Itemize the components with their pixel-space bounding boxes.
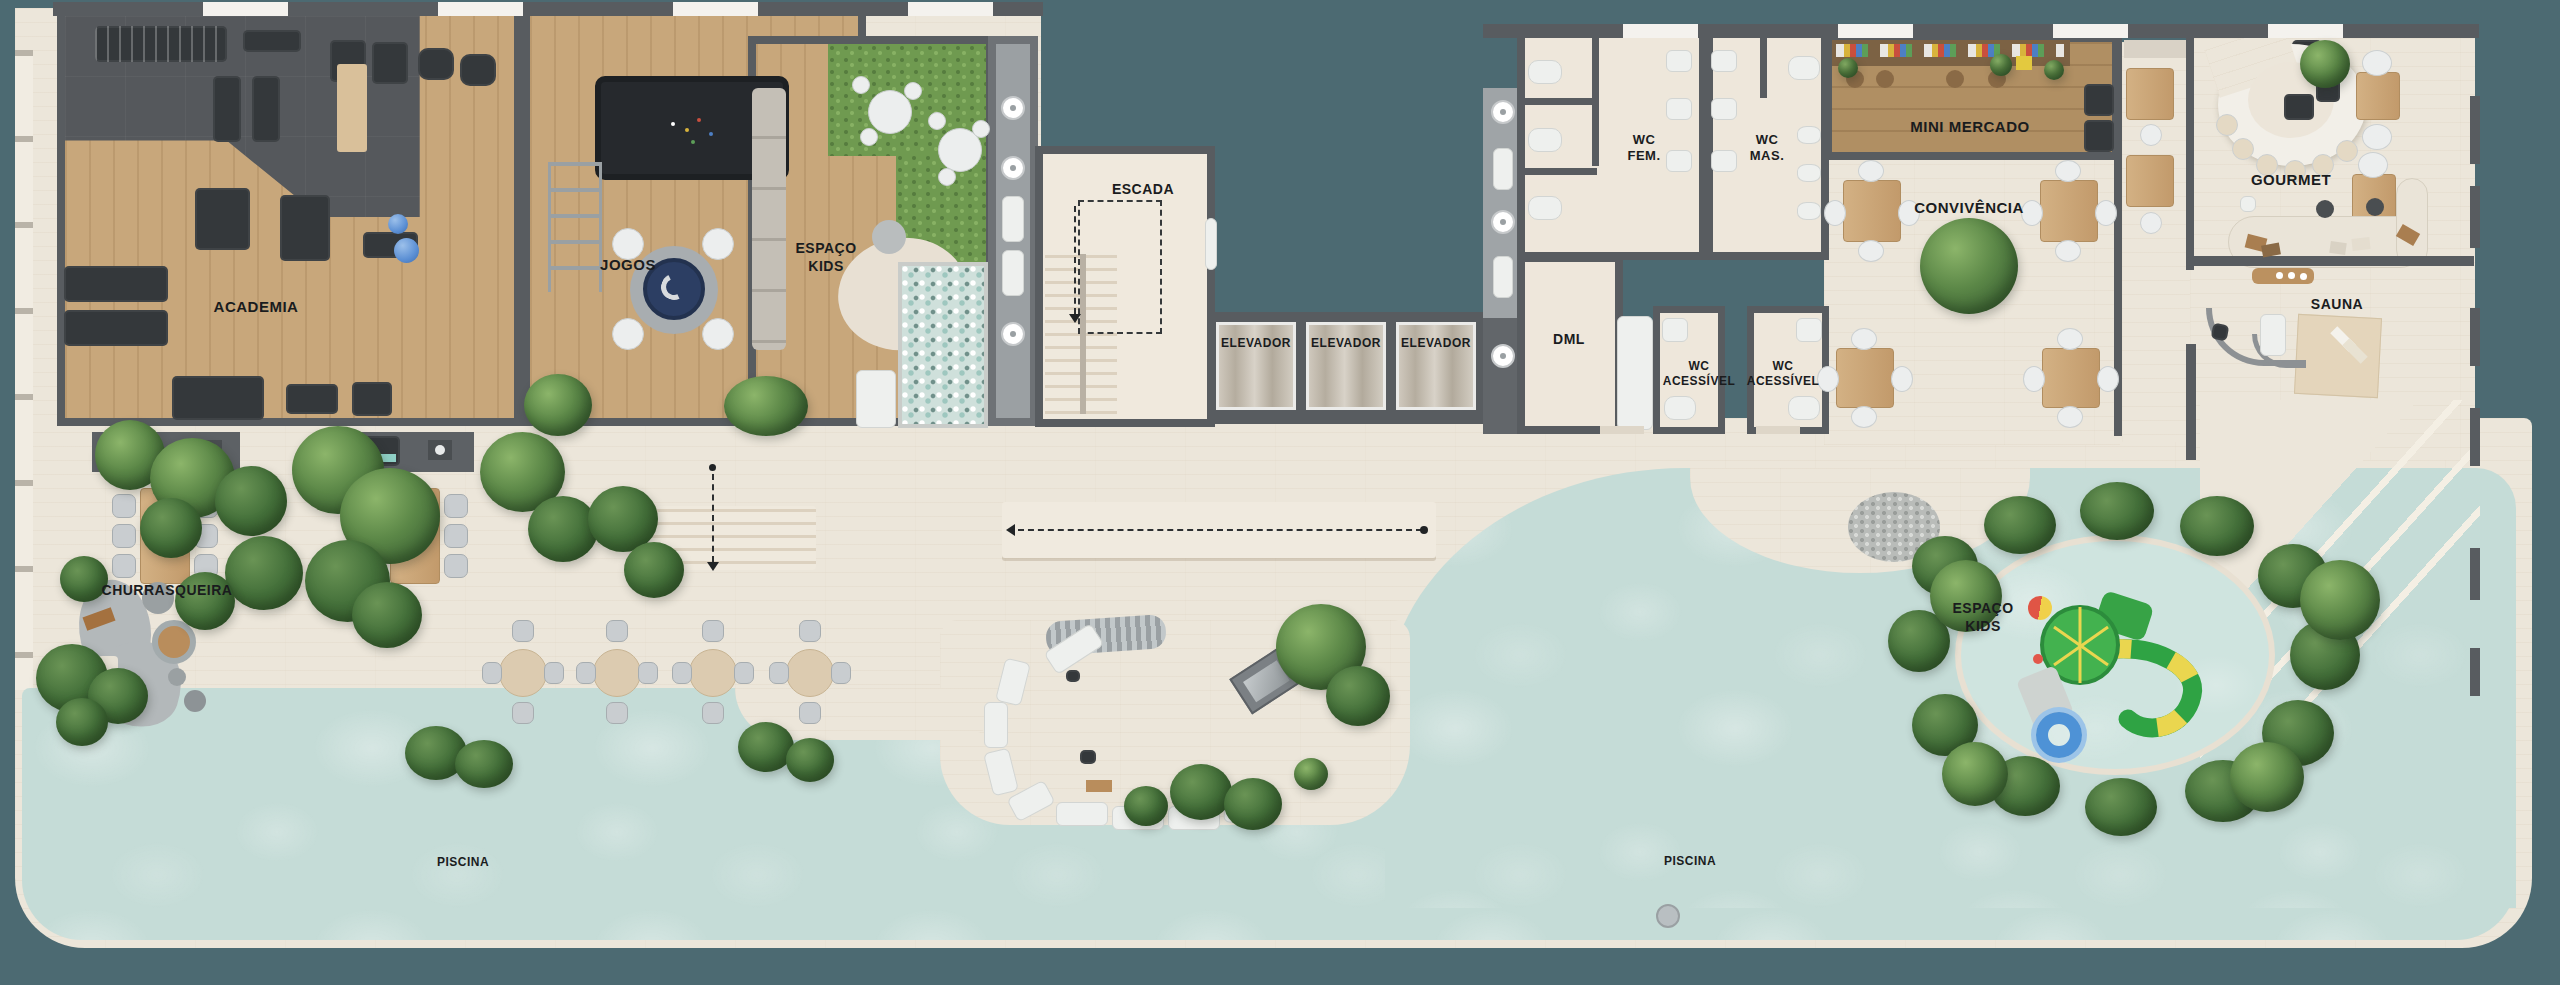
label-wc-acessivel-2: WC ACESSÍVEL: [1747, 359, 1820, 389]
utility-meter: [1001, 156, 1025, 180]
pit-plant: [1326, 666, 1390, 726]
ball-pit: [898, 262, 988, 428]
label-wc-mas: WC MAS.: [1750, 132, 1785, 165]
label-academia: ACADEMIA: [214, 298, 299, 317]
gym-chair: [418, 48, 454, 80]
toilet: [1528, 60, 1562, 84]
dining-table: [1843, 180, 1901, 242]
chair: [702, 228, 734, 260]
pool-drain-cap: [1656, 904, 1680, 928]
kids-chair: [904, 82, 922, 100]
pool-hedge: [1224, 778, 1282, 830]
stall-wall: [1525, 168, 1597, 175]
sink: [1666, 50, 1692, 72]
sink: [1711, 98, 1737, 120]
chair: [2095, 200, 2117, 226]
float-ring: [2036, 712, 2082, 758]
exercise-ball: [388, 214, 408, 234]
crate: [2016, 56, 2032, 70]
chair: [2057, 406, 2083, 428]
path-dot: [709, 464, 716, 471]
stool: [2140, 212, 2162, 234]
stall-wall: [1592, 38, 1599, 166]
utility-box: [1493, 148, 1513, 190]
island-hedge: [2180, 496, 2254, 556]
chair: [1851, 328, 1877, 350]
tall-door-panel: [1617, 316, 1653, 430]
sauna-left-wall: [2186, 344, 2196, 460]
cafe-table: [499, 649, 547, 697]
ramp-dot: [1420, 526, 1428, 534]
chair: [1858, 240, 1884, 262]
tree: [528, 496, 598, 562]
side-table: [2316, 200, 2334, 218]
facade-segment: [2470, 186, 2480, 248]
pit-tray: [1086, 780, 1112, 792]
urinal: [1797, 202, 1821, 220]
fridge: [2084, 84, 2114, 116]
pit-sofa: [1056, 802, 1108, 826]
chair: [702, 620, 724, 642]
bbq-sink: [428, 440, 452, 460]
wall-table: [2126, 155, 2174, 207]
tree: [1920, 218, 2018, 314]
chair: [482, 662, 502, 684]
label-wc-acessivel-1: WC ACESSÍVEL: [1663, 359, 1736, 389]
utility-meter: [1491, 210, 1515, 234]
urinal: [1797, 164, 1821, 182]
chair: [444, 494, 468, 518]
plate-rack: [352, 382, 392, 416]
chair: [512, 620, 534, 642]
chair: [831, 662, 851, 684]
dining-table: [2042, 348, 2100, 408]
top-facade-wall-right: [1483, 24, 2479, 38]
plant: [524, 374, 592, 436]
sofa-pillow: [2351, 237, 2370, 251]
island-palm: [1942, 742, 2008, 806]
kids-chair: [852, 76, 870, 94]
tree: [352, 582, 422, 648]
door: [1205, 218, 1217, 270]
toilet: [1528, 196, 1562, 220]
chair: [799, 620, 821, 642]
floor-plan: ACADEMIA JOGOS ESPAÇO KIDS ESCADA ELEVAD…: [0, 0, 2560, 985]
label-piscina-left: PISCINA: [437, 855, 489, 870]
kids-chair: [928, 112, 946, 130]
ramp-dashed-line: [1018, 529, 1422, 531]
island-palm: [2300, 560, 2380, 640]
label-espaco-kids-indoor: ESPAÇO KIDS: [795, 240, 856, 275]
palm: [56, 698, 108, 746]
chair: [2358, 152, 2388, 178]
sofa-pillow: [2329, 241, 2347, 255]
urinal: [1797, 126, 1821, 144]
chair: [112, 554, 136, 578]
plant: [1838, 58, 1858, 78]
stall-wall: [1525, 98, 1597, 105]
chair: [672, 662, 692, 684]
pool-hedge: [455, 740, 513, 788]
treadmill: [213, 76, 241, 142]
plant: [2300, 40, 2350, 88]
sink: [1666, 98, 1692, 120]
bar-stool: [2336, 140, 2358, 162]
sink: [1711, 150, 1737, 172]
label-elevador-2: ELEVADOR: [1311, 336, 1381, 351]
kids-chair: [972, 120, 990, 138]
utility-box: [1002, 196, 1024, 242]
treadmill: [252, 76, 280, 142]
dining-table: [1836, 348, 1894, 408]
chair: [1817, 366, 1839, 392]
plant: [2044, 60, 2064, 80]
facade-segment: [2470, 96, 2480, 164]
facade-segment: [2470, 408, 2480, 466]
pool-hedge: [1170, 764, 1232, 820]
toilet: [1528, 128, 1562, 152]
label-escada: ESCADA: [1112, 181, 1174, 199]
shelf: [2124, 40, 2186, 58]
stool: [2140, 124, 2162, 146]
gourmet-table: [2356, 72, 2400, 120]
label-dml: DML: [1553, 331, 1585, 349]
chair: [799, 702, 821, 724]
island-hedge: [2080, 482, 2154, 540]
dumbbell-rack: [95, 26, 227, 62]
chair: [1824, 200, 1846, 226]
chair: [734, 662, 754, 684]
door-threshold: [1600, 426, 1644, 434]
chair: [612, 318, 644, 350]
fridge: [2084, 120, 2114, 152]
label-mini-mercado: MINI MERCADO: [1910, 118, 2029, 137]
bench-press: [195, 188, 250, 250]
utility-meter: [1491, 344, 1515, 368]
stair-arrowhead: [1069, 314, 1081, 323]
chair: [544, 662, 564, 684]
tree: [225, 536, 303, 610]
shoulder-press: [64, 266, 168, 302]
sink: [1711, 50, 1737, 72]
chair: [2362, 50, 2392, 76]
chair: [2097, 366, 2119, 392]
squat-cage: [172, 376, 264, 420]
label-jogos: JOGOS: [600, 256, 656, 275]
gym-mat: [372, 42, 408, 84]
chair: [2055, 240, 2081, 262]
label-wc-fem: WC FEM.: [1627, 132, 1660, 165]
chair: [638, 662, 658, 684]
lounge-stool: [184, 690, 206, 712]
chair: [2055, 160, 2081, 182]
chair: [444, 554, 468, 578]
pool-hedge: [1124, 786, 1168, 826]
leg-machine: [280, 195, 330, 261]
sink: [1666, 150, 1692, 172]
side-table: [2366, 198, 2384, 216]
utility-meter: [1491, 100, 1515, 124]
stair-rail: [1080, 254, 1086, 414]
facade-segment: [2470, 648, 2480, 696]
pit-stool: [1066, 670, 1080, 682]
chair: [1851, 406, 1877, 428]
stretching-mat: [337, 64, 367, 152]
stair-guide: [1078, 200, 1162, 334]
door-threshold: [1756, 426, 1800, 434]
top-facade-wall-left: [53, 2, 1043, 16]
sauna-bench: [2252, 268, 2314, 284]
dining-table: [2040, 180, 2098, 242]
utility-box: [1002, 250, 1024, 296]
island-hedge: [2085, 778, 2157, 836]
label-elevador-3: ELEVADOR: [1401, 336, 1471, 351]
facade-segment: [2470, 308, 2480, 366]
chair: [702, 702, 724, 724]
chair: [112, 494, 136, 518]
bar-appliance: [2284, 94, 2314, 120]
chair: [606, 702, 628, 724]
chair: [1858, 160, 1884, 182]
round-coffee-table: [152, 620, 196, 664]
island-hedge: [1984, 496, 2056, 554]
gym-chair: [460, 54, 496, 86]
chair: [512, 702, 534, 724]
chair: [702, 318, 734, 350]
kids-chair: [860, 128, 878, 146]
pit-sofa: [984, 702, 1008, 748]
toilet: [1788, 396, 1820, 420]
exercise-ball: [394, 238, 419, 263]
label-churrasqueira: CHURRASQUEIRA: [102, 582, 233, 600]
chair: [2057, 328, 2083, 350]
lounge-stool: [168, 668, 186, 686]
kids-mat: [856, 370, 896, 428]
wall-table: [2126, 68, 2174, 120]
plant: [724, 376, 808, 436]
chair: [2021, 200, 2043, 226]
shoulder-press: [64, 310, 168, 346]
beach-ball: [2028, 596, 2052, 620]
kids-chair: [938, 168, 956, 186]
pouf: [872, 220, 906, 254]
utility-box: [1493, 256, 1513, 298]
side-table: [2240, 196, 2256, 212]
pit-stool: [1080, 750, 1096, 764]
cafe-table: [786, 649, 834, 697]
kids-bench: [752, 88, 786, 350]
pit-plant: [1294, 758, 1328, 790]
kettlebell-shelf: [243, 30, 301, 52]
cafe-table: [593, 649, 641, 697]
island-palm: [2230, 742, 2304, 812]
sink: [1796, 318, 1822, 342]
label-espaco-kids-pool: ESPAÇO KIDS: [1952, 600, 2013, 635]
chair: [112, 524, 136, 548]
label-sauna: SAUNA: [2311, 296, 2363, 314]
toilet: [1788, 56, 1820, 80]
stall-wall: [1760, 38, 1767, 98]
bar-stool: [2232, 138, 2254, 160]
drain-plate: [2211, 323, 2230, 342]
label-gourmet: GOURMET: [2251, 171, 2331, 190]
sink: [1662, 318, 1688, 342]
cafe-table: [689, 649, 737, 697]
facade-segment: [2470, 548, 2480, 600]
tree: [215, 466, 287, 536]
chair: [1891, 366, 1913, 392]
stair-arrow-line: [1074, 206, 1076, 314]
chair: [2023, 366, 2045, 392]
chair: [444, 524, 468, 548]
ladder-rack: [548, 162, 602, 292]
gourmet-bottom-wall: [2186, 256, 2474, 266]
chair: [606, 620, 628, 642]
label-piscina-right: PISCINA: [1664, 854, 1716, 869]
gourmet-chaise: [2396, 178, 2428, 266]
chair: [2362, 124, 2392, 150]
ramp-arrowhead: [1006, 524, 1015, 536]
plant: [1990, 54, 2012, 76]
chair: [576, 662, 596, 684]
flat-bench: [286, 384, 338, 414]
tree: [175, 572, 235, 630]
path-dashed-line: [712, 474, 714, 562]
utility-meter: [1001, 322, 1025, 346]
bar-stool: [2216, 114, 2238, 136]
label-elevador-1: ELEVADOR: [1221, 336, 1291, 351]
path-arrowhead: [707, 562, 719, 571]
label-convivencia: CONVIVÊNCIA: [1914, 199, 2024, 218]
tree: [624, 542, 684, 598]
shower-unit: [2260, 314, 2286, 356]
pool-hedge: [786, 738, 834, 782]
left-facade-wall: [15, 50, 33, 690]
chair: [769, 662, 789, 684]
tree: [140, 498, 202, 558]
toilet: [1664, 396, 1696, 420]
utility-meter: [1001, 96, 1025, 120]
partition-wall: [2186, 34, 2194, 270]
